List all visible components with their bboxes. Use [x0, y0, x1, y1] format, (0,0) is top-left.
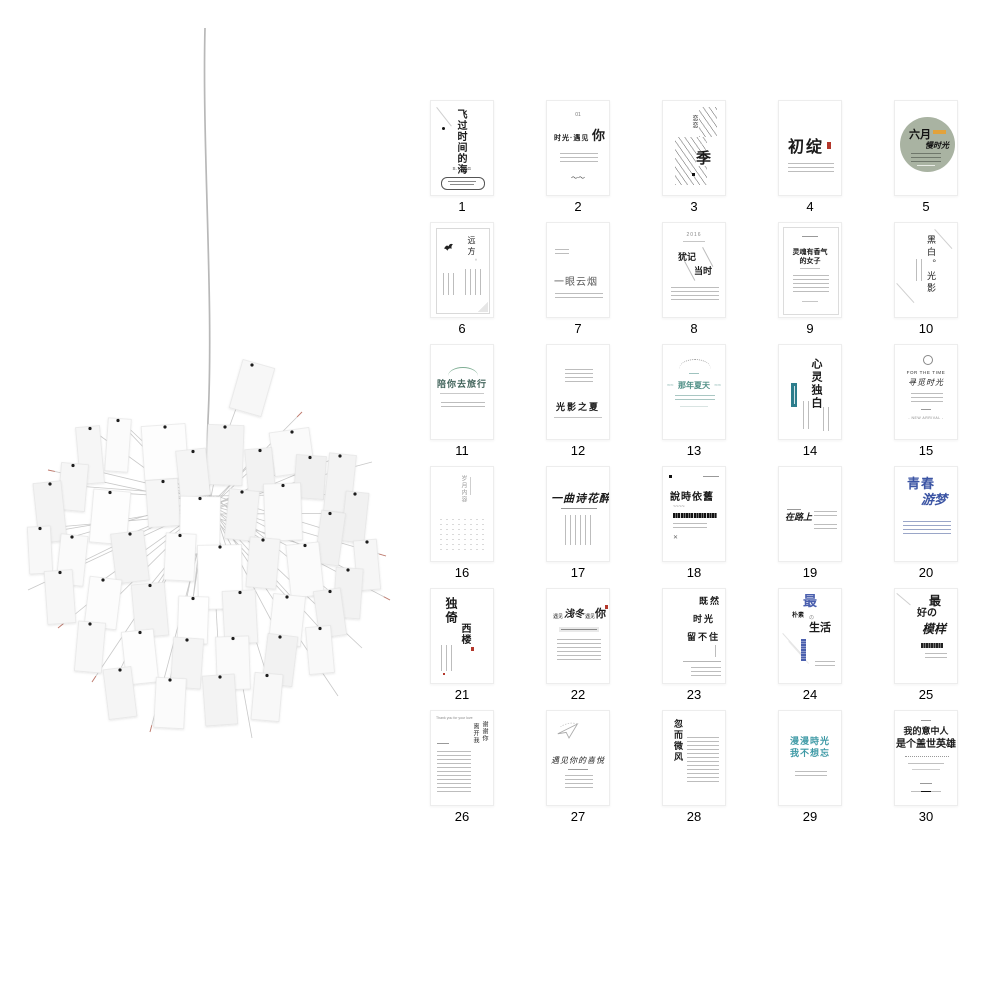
card-title: 恋恋 [691, 115, 697, 129]
circle-logo [923, 355, 933, 365]
design-number: 4 [778, 199, 842, 214]
design-cell-4: 初绽 4 [778, 100, 842, 214]
design-cell-17: 一曲诗花醉 17 [546, 466, 610, 580]
banner-text-line [794, 386, 795, 404]
dot-decoration [692, 173, 695, 176]
card-title: 犹记 [678, 253, 696, 262]
tiny-text-columns [916, 259, 924, 281]
card-title2: 时光 [693, 615, 715, 624]
year-label: 2016 [686, 233, 701, 238]
card-title: 最 [929, 595, 941, 607]
design-number: 17 [546, 565, 610, 580]
design-cell-11: 陪你去旅行 11 [430, 344, 494, 458]
card-title2: 生活 [809, 622, 831, 633]
design-card-23: 既然 时光 留不住 [662, 588, 726, 684]
design-number: 18 [662, 565, 726, 580]
dot-decoration [442, 127, 445, 130]
tiny-text-line [802, 236, 818, 237]
tiny-text-lines [565, 775, 593, 789]
design-number: 12 [546, 443, 610, 458]
card-title: 远方 [467, 236, 475, 258]
card-title2: 当时 [694, 267, 712, 276]
design-number: 14 [778, 443, 842, 458]
tiny-text-line [921, 409, 931, 410]
rule-line [683, 661, 721, 662]
tiny-text-lines [565, 369, 593, 383]
card-title: 岁月内容 [460, 475, 466, 503]
tiny-text-lines [795, 771, 827, 778]
card-title: 漫漫時光 [790, 737, 830, 746]
product-image: 飞过时间的海 S.I.W.G 1 01 时光·遇见 你 〜〜 2 [0, 0, 990, 990]
design-card-25: 最 好の 模样 [894, 588, 958, 684]
tiny-text-lines [675, 395, 715, 402]
card-title: 一曲诗花醉 [551, 493, 610, 504]
design-number: 28 [662, 809, 726, 824]
diagonal-line [896, 283, 914, 303]
design-number: 3 [662, 199, 726, 214]
design-cell-24: 最 朴素 の 生活 24 [778, 588, 842, 702]
card-title: 青春 [907, 478, 935, 491]
design-number: 25 [894, 687, 958, 702]
wave-left: ≈≈ [667, 383, 674, 389]
design-card-9: 灵魂有香气 的女子 [778, 222, 842, 318]
card-subtitle: 慢时光 [925, 141, 949, 149]
design-number: 7 [546, 321, 610, 336]
card-subtitle: S.I.W.G [452, 167, 471, 172]
tiny-text-line [683, 241, 705, 242]
tiny-text-lines [815, 661, 835, 668]
design-cell-7: 一眼云烟 7 [546, 222, 610, 336]
design-number: 23 [662, 687, 726, 702]
design-card-12: 光影之夏 [546, 344, 610, 440]
card-title: 浅冬 [564, 610, 584, 620]
card-title: 一眼云烟 [554, 278, 598, 288]
card-title: 六月 [909, 129, 931, 140]
card-title2: 的女子 [800, 258, 821, 265]
tiny-text-columns [803, 401, 813, 429]
tiny-text-line [568, 769, 588, 770]
design-number: 2 [546, 199, 610, 214]
design-card-14: 心灵独白 [778, 344, 842, 440]
seal-stamp [471, 647, 474, 651]
x-mark: ✕ [673, 535, 678, 541]
tiny-text-line [554, 417, 602, 418]
tiny-text-lines [691, 667, 721, 677]
vertical-title-1: 谢谢你 [481, 721, 487, 742]
design-number: 8 [662, 321, 726, 336]
wavy-underline: ~~~~ [673, 505, 685, 510]
seal-stamp [605, 605, 608, 609]
dotted-arc [679, 359, 711, 369]
design-card-11: 陪你去旅行 [430, 344, 494, 440]
blue-ribbon [801, 639, 806, 661]
tiny-text-lines [560, 153, 598, 163]
design-cell-13: ≈≈ 那年夏天 ≈≈ 13 [662, 344, 726, 458]
tiny-text-lines [911, 153, 941, 163]
tiny-text-line [802, 301, 818, 302]
square-decoration [669, 475, 672, 478]
tiny-text-line [437, 743, 449, 744]
tiny-text-columns [441, 645, 455, 671]
design-card-5: 六月 慢时光 [894, 100, 958, 196]
design-cell-9: 灵魂有香气 的女子 9 [778, 222, 842, 336]
tiny-black-segment [921, 791, 931, 792]
card-title: 在路上 [785, 514, 812, 523]
design-number: 24 [778, 687, 842, 702]
design-number: 20 [894, 565, 958, 580]
card-title: 遇见你的喜悦 [551, 757, 605, 765]
design-card-3: 恋恋 季 [662, 100, 726, 196]
design-cell-19: 在路上 19 [778, 466, 842, 580]
design-number: 10 [894, 321, 958, 336]
card-title: 独倚 [445, 597, 457, 625]
card-title3: 留不住 [687, 633, 720, 642]
design-card-4: 初绽 [778, 100, 842, 196]
card-title: 忽而微风 [672, 719, 681, 763]
card-title-big: 你 [592, 129, 605, 142]
english-caption: FOR THE TIME [907, 371, 946, 376]
design-card-15: FOR THE TIME 寻觅时光 - NEW ARRIVAL - [894, 344, 958, 440]
design-cell-23: 既然 时光 留不住 23 [662, 588, 726, 702]
design-grid: 飞过时间的海 S.I.W.G 1 01 时光·遇见 你 〜〜 2 [430, 100, 958, 824]
tiny-text-lines [911, 393, 943, 404]
design-card-24: 最 朴素 の 生活 [778, 588, 842, 684]
card-title3: 模样 [922, 623, 946, 635]
tiny-text-columns [443, 273, 455, 295]
design-cell-29: 漫漫時光 我不想忘 29 [778, 710, 842, 824]
design-cell-22: 遇见 浅冬 遇见 你 22 [546, 588, 610, 702]
card-title: 說時依舊 [670, 493, 714, 503]
design-number: 26 [430, 809, 494, 824]
design-number: 6 [430, 321, 494, 336]
tiny-text-line [440, 393, 484, 394]
design-cell-10: 黑白。光影 10 [894, 222, 958, 336]
tiny-text-lines [814, 511, 837, 518]
stripe-decoration [699, 107, 717, 137]
design-number: 15 [894, 443, 958, 458]
design-cell-16: 岁月内容 16 [430, 466, 494, 580]
design-cell-25: 最 好の 模样 25 [894, 588, 958, 702]
small-word: 遇见 [553, 615, 563, 620]
card-title2: 我不想忘 [790, 749, 830, 758]
design-cell-8: 2016 犹记 当时 8 [662, 222, 726, 336]
tiny-text-line [703, 476, 719, 477]
period-mark: 。 [475, 257, 480, 262]
design-cell-15: FOR THE TIME 寻觅时光 - NEW ARRIVAL - 15 [894, 344, 958, 458]
design-cell-1: 飞过时间的海 S.I.W.G 1 [430, 100, 494, 214]
design-card-21: 独倚 西楼 [430, 588, 494, 684]
design-card-8: 2016 犹记 当时 [662, 222, 726, 318]
tiny-text-line [689, 373, 699, 374]
design-number: 19 [778, 565, 842, 580]
folded-corner [478, 302, 488, 312]
design-card-13: ≈≈ 那年夏天 ≈≈ [662, 344, 726, 440]
tiny-text-line [680, 406, 708, 407]
tiny-text-lines [687, 737, 719, 783]
design-card-18: 說時依舊 ~~~~ ✕ [662, 466, 726, 562]
design-card-19: 在路上 [778, 466, 842, 562]
tiny-text-lines [557, 639, 601, 661]
tiny-text-column [470, 477, 471, 495]
design-cell-30: 我的意中人 是个盖世英雄 30 [894, 710, 958, 824]
tiny-text-lines [925, 653, 947, 660]
seal-stamp [827, 142, 831, 149]
design-cell-5: 六月 慢时光 5 [894, 100, 958, 214]
card-title: 陪你去旅行 [437, 380, 487, 389]
design-cell-14: 心灵独白 14 [778, 344, 842, 458]
vertical-title-2: 离开我 [472, 723, 478, 744]
index-label: 01 [575, 113, 581, 118]
design-number: 21 [430, 687, 494, 702]
tiny-text-line [921, 720, 931, 721]
tiny-text-columns [565, 515, 593, 545]
design-cell-28: 忽而微风 28 [662, 710, 726, 824]
green-arc [448, 367, 478, 376]
tiny-text-lines [793, 275, 829, 293]
tiny-text-columns [465, 269, 481, 295]
card-title: 黑白。光影 [925, 235, 934, 295]
tiny-text-line [920, 783, 932, 784]
card-title: 时光·遇见 [554, 135, 589, 142]
design-card-30: 我的意中人 是个盖世英雄 [894, 710, 958, 806]
card-title2: 西楼 [459, 623, 469, 645]
design-cell-27: 遇见你的喜悦 27 [546, 710, 610, 824]
card-title: 寻觅时光 [908, 379, 944, 387]
tiny-text-line [800, 268, 820, 269]
design-card-17: 一曲诗花醉 [546, 466, 610, 562]
diagonal-line [896, 593, 910, 605]
english-caption: Thank you for your love [436, 717, 473, 721]
design-cell-12: 光影之夏 12 [546, 344, 610, 458]
design-card-29: 漫漫時光 我不想忘 [778, 710, 842, 806]
design-cell-3: 恋恋 季 3 [662, 100, 726, 214]
seal-dot [443, 673, 445, 675]
tiny-text-columns [823, 407, 831, 431]
design-card-6: 远方 。 [430, 222, 494, 318]
design-number: 1 [430, 199, 494, 214]
tiny-text-line [448, 181, 476, 182]
card-title2: 游梦 [921, 494, 947, 507]
design-number: 11 [430, 443, 494, 458]
tiny-text-line [908, 763, 944, 764]
tiny-text-lines [814, 524, 837, 531]
highlight-bar [559, 627, 599, 632]
design-card-10: 黑白。光影 [894, 222, 958, 318]
card-title: 我的意中人 [903, 728, 948, 737]
paper-plane-icon [555, 719, 583, 743]
tiny-annotation [715, 645, 720, 657]
card-title-blue: 最 [803, 595, 817, 609]
design-card-16: 岁月内容 [430, 466, 494, 562]
tiny-text-line [561, 508, 597, 509]
design-number: 22 [546, 687, 610, 702]
wave-decoration: 〜〜 [571, 175, 585, 182]
design-cell-2: 01 时光·遇见 你 〜〜 2 [546, 100, 610, 214]
card-title: 那年夏天 [678, 382, 710, 390]
new-arrival-label: - NEW ARRIVAL - [908, 417, 943, 421]
tiny-text-line [917, 165, 935, 166]
design-card-26: Thank you for your love 谢谢你 离开我 [430, 710, 494, 806]
card-title: 灵魂有香气 [793, 249, 828, 256]
design-number: 5 [894, 199, 958, 214]
tiny-text-line [912, 769, 940, 770]
design-card-27: 遇见你的喜悦 [546, 710, 610, 806]
tiny-text-lines [903, 521, 951, 536]
card-word: 朴素 [792, 613, 804, 619]
design-cell-18: 說時依舊 ~~~~ ✕ 18 [662, 466, 726, 580]
tiny-text-lines [673, 523, 707, 530]
dark-badge [921, 643, 943, 648]
card-title2: 是个盖世英雄 [896, 740, 956, 750]
design-number: 16 [430, 565, 494, 580]
design-card-22: 遇见 浅冬 遇见 你 [546, 588, 610, 684]
design-card-7: 一眼云烟 [546, 222, 610, 318]
bird-icon [443, 243, 454, 252]
design-number: 30 [894, 809, 958, 824]
design-cell-20: 青春 游梦 20 [894, 466, 958, 580]
small-word2: 遇见 [585, 615, 595, 620]
tiny-text-lines [671, 287, 719, 301]
card-title-big: 季 [696, 151, 711, 166]
tiny-text-line [450, 184, 474, 185]
design-cell-6: 远方 。 6 [430, 222, 494, 336]
tiny-text-lines [555, 293, 603, 299]
dotted-rule [905, 756, 949, 757]
tiny-text-lines [437, 751, 471, 793]
decoration [436, 107, 452, 127]
tiny-text-lines [788, 163, 834, 173]
design-card-1: 飞过时间的海 S.I.W.G [430, 100, 494, 196]
design-number: 9 [778, 321, 842, 336]
design-number: 13 [662, 443, 726, 458]
design-card-28: 忽而微风 [662, 710, 726, 806]
card-title2: 好の [917, 609, 937, 619]
card-title: 光影之夏 [556, 403, 600, 412]
pendant-lamp-illustration [0, 0, 420, 780]
card-title-big: 你 [595, 608, 606, 619]
design-number: 27 [546, 809, 610, 824]
tiny-text-lines [555, 249, 569, 255]
design-cell-21: 独倚 西楼 21 [430, 588, 494, 702]
tiny-text-line [787, 509, 801, 510]
card-title: 初绽 [788, 139, 824, 155]
design-card-20: 青春 游梦 [894, 466, 958, 562]
design-number: 29 [778, 809, 842, 824]
slash-decoration [702, 247, 713, 267]
design-cell-26: Thank you for your love 谢谢你 离开我 26 [430, 710, 494, 824]
black-bar [673, 513, 717, 518]
card-title: 既然 [699, 597, 721, 606]
diagonal-line [934, 229, 952, 249]
design-card-2: 01 时光·遇见 你 〜〜 [546, 100, 610, 196]
orange-badge [933, 130, 946, 134]
wave-right: ≈≈ [714, 383, 721, 389]
tiny-text-lines [441, 402, 485, 409]
character-grid [438, 517, 488, 551]
